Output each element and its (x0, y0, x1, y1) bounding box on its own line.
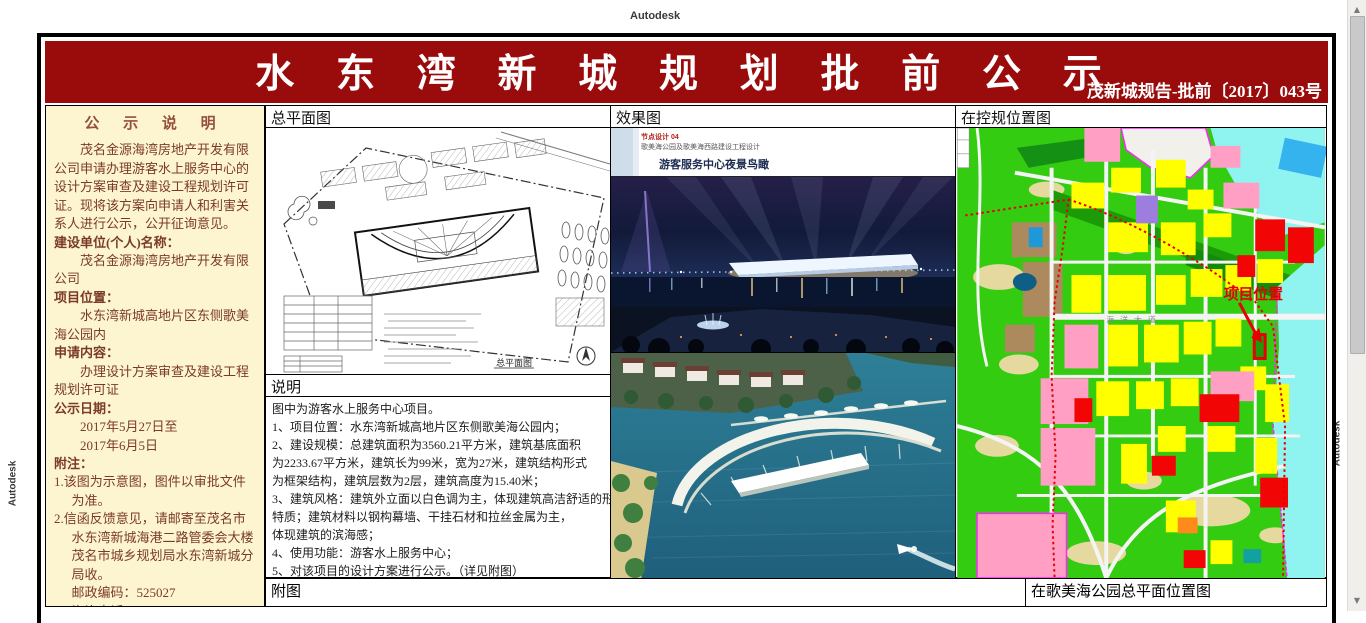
description-line: 1、项目位置：水东湾新城高地片区东侧歌美海公园内； (272, 418, 604, 436)
note-1: 1.该图为示意图，图件以审批文件为准。 (54, 473, 256, 510)
notice-panel: 公 示 说 明 茂名金源海湾房地产开发有限公司申请办理游客水上服务中心的设计方案… (45, 105, 265, 607)
slide-accent-strip-2 (633, 128, 639, 176)
notice-heading: 公 示 说 明 (54, 114, 256, 135)
note-2-zip: 邮政编码：525027 (54, 584, 256, 602)
description-body: 图中为游客水上服务中心项目。 1、项目位置：水东湾新城高地片区东侧歌美海公园内；… (266, 397, 610, 583)
scrollbar-down-icon[interactable]: ▼ (1349, 593, 1365, 609)
description-header: 说明 (266, 375, 610, 397)
regulatory-map-header: 在控规位置图 (956, 106, 1326, 128)
description-line: 为2233.67平方米，建筑长为99米，宽为27米，建筑结构形式 (272, 454, 604, 472)
slide-accent-strip (611, 128, 633, 176)
description-line: 4、使用功能：游客水上服务中心； (272, 544, 604, 562)
description-line: 特质；建筑材料以钢构幕墙、干挂石材和拉丝金属为主， (272, 508, 604, 526)
field-content-value: 办理设计方案审查及建设工程规划许可证 (54, 363, 256, 400)
field-owner-value: 茂名金源海湾房地产开发有限公司 (54, 252, 256, 289)
field-owner-label: 建设单位(个人)名称： (54, 234, 256, 252)
road-label: 海洋大道 (1106, 315, 1162, 325)
note-2: 2.信函反馈意见，请邮寄至茂名市水东湾新城海港二路管委会大楼茂名市城乡规划局水东… (54, 510, 256, 584)
site-plan-drawing: 总平面图 (266, 128, 610, 374)
description-line: 图中为游客水上服务中心项目。 (272, 400, 604, 418)
notice-intro: 茂名金源海湾房地产开发有限公司申请办理游客水上服务中心的设计方案审查及建设工程规… (54, 141, 256, 233)
field-date-value-1: 2017年5月27日至 (54, 418, 256, 436)
zoning-map-image: 海洋大道 项目位置 (956, 128, 1326, 578)
attached-drawings-header: 附图 (265, 578, 1026, 607)
slide-subtitle: 歌美海公园及歌美海西路建设工程设计 (641, 142, 760, 152)
regulatory-map-section: 在控规位置图 (955, 105, 1327, 578)
site-plan-section: 总平面图 (265, 105, 611, 375)
field-date-label: 公示日期： (54, 400, 256, 418)
description-line: 为框架结构，建筑层数为2层，建筑高度为15.40米； (272, 472, 604, 490)
field-date-value-2: 2017年6月5日 (54, 437, 256, 455)
vertical-scrollbar[interactable]: ▲ ▼ (1347, 0, 1366, 611)
title-banner: 水 东 湾 新 城 规 划 批 前 公 示 茂新城规告-批前〔2017〕043号 (45, 41, 1328, 103)
announcement-sheet: 水 东 湾 新 城 规 划 批 前 公 示 茂新城规告-批前〔2017〕043号… (37, 33, 1336, 623)
scrollbar-thumb[interactable] (1350, 16, 1365, 354)
slide-tag: 节点设计 04 (641, 132, 679, 142)
rendering-header: 效果图 (611, 106, 955, 128)
park-location-header: 在歌美海公园总平面位置图 (1025, 578, 1327, 607)
description-section: 说明 图中为游客水上服务中心项目。 1、项目位置：水东湾新城高地片区东侧歌美海公… (265, 374, 611, 578)
night-rendering-image (611, 177, 955, 352)
site-plan-header: 总平面图 (266, 106, 610, 128)
field-location-value: 水东湾新城高地片区东侧歌美海公园内 (54, 307, 256, 344)
note-2-tel: 咨询电话：0668-2538607 (54, 603, 256, 607)
description-line: 体现建筑的滨海感； (272, 526, 604, 544)
field-content-label: 申请内容： (54, 344, 256, 362)
field-location-label: 项目位置： (54, 289, 256, 307)
layout-grid: 公 示 说 明 茂名金源海湾房地产开发有限公司申请办理游客水上服务中心的设计方案… (45, 103, 1328, 607)
autodesk-watermark-top: Autodesk (630, 10, 680, 22)
plan-drawing-label: 总平面图 (496, 357, 532, 368)
rendering-slide-header: 节点设计 04 歌美海公园及歌美海西路建设工程设计 游客服务中心夜景鸟瞰 (611, 128, 955, 177)
description-line: 2、建设规模：总建筑面积为3560.21平方米，建筑基底面积 (272, 436, 604, 454)
rendering-section: 效果图 节点设计 04 歌美海公园及歌美海西路建设工程设计 游客服务中心夜景鸟瞰 (610, 105, 956, 578)
project-location-label: 项目位置 (1223, 285, 1283, 303)
slide-title: 游客服务中心夜景鸟瞰 (659, 156, 769, 172)
notes-label: 附注： (54, 455, 256, 473)
marina-rendering-image (611, 352, 955, 580)
document-number: 茂新城规告-批前〔2017〕043号 (1087, 77, 1322, 102)
description-line: 3、建筑风格：建筑外立面以白色调为主，体现建筑高洁舒适的形象 (272, 490, 604, 508)
autodesk-watermark-left: Autodesk (8, 454, 19, 514)
